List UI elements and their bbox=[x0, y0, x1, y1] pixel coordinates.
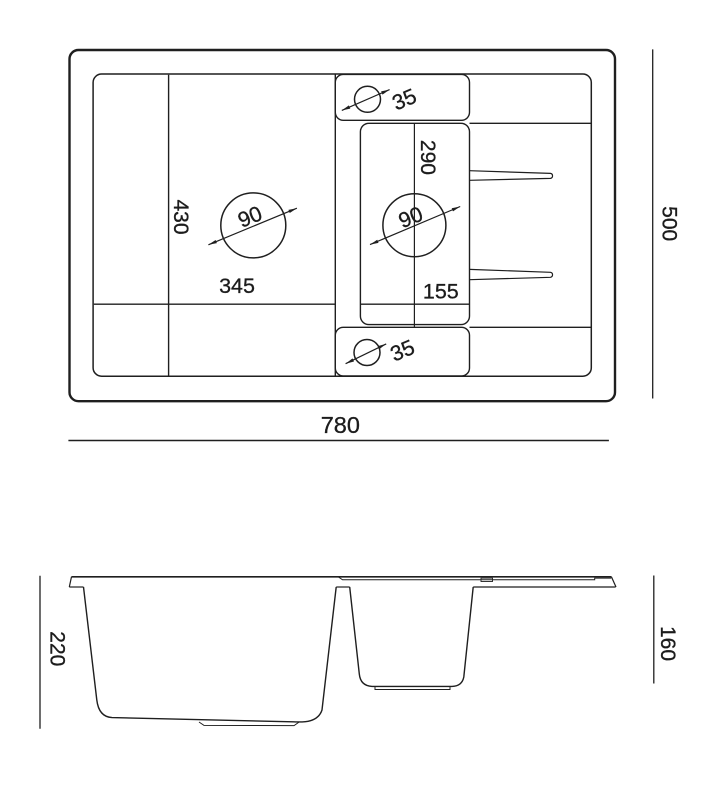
svg-text:35: 35 bbox=[387, 335, 418, 366]
svg-text:160: 160 bbox=[656, 626, 679, 661]
svg-text:155: 155 bbox=[423, 280, 459, 304]
svg-text:430: 430 bbox=[169, 199, 192, 234]
svg-text:90: 90 bbox=[234, 201, 265, 232]
svg-text:780: 780 bbox=[321, 412, 360, 438]
svg-text:345: 345 bbox=[219, 274, 255, 298]
svg-text:35: 35 bbox=[389, 84, 420, 115]
svg-text:220: 220 bbox=[46, 631, 69, 666]
svg-text:500: 500 bbox=[657, 206, 680, 241]
svg-text:90: 90 bbox=[395, 202, 426, 233]
svg-text:290: 290 bbox=[416, 140, 439, 175]
